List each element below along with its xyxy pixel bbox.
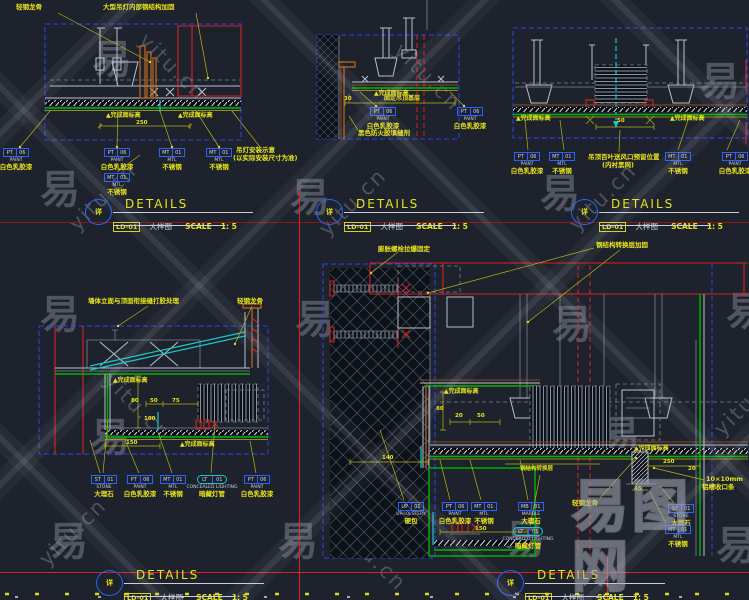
code: 01 [531,503,544,510]
note-label: 固定吊顶基层 [384,95,420,103]
finish-level-label: ▲完成面标高 [670,115,705,123]
divider [113,225,225,226]
dimension: 100 [144,416,155,422]
dimension-note: 钢结构转换层 [520,466,553,472]
title-block-title: DETAILS [356,197,419,211]
code: 01 [562,153,575,160]
scale-value: 1: 5 [221,222,237,231]
title-block: 详 DETAILS LD-01 大样图 SCALE 1: 5 [316,197,488,229]
divider [344,225,456,226]
code: PT [105,149,117,156]
detail-bubble: 详 [316,199,343,225]
material-callout: MT01 MTL 不锈钢 [532,152,592,175]
code: 01 [411,503,424,510]
code: MT [472,503,484,510]
note-label: (内衬黑网) [602,161,634,169]
code: PT [458,108,470,115]
divider [113,212,253,213]
leader-label: 大型吊灯内部钢结构加固 [103,3,175,11]
code: 06 [735,153,748,160]
material-callout: PT06 PAINT 白色乳胶漆 [0,148,46,171]
dimension: 250 [136,120,147,126]
callout-code-box: MB01 [518,502,544,511]
material-cn: 暗藏灯管 [498,542,558,550]
watermark-logo: 易图网 [572,478,749,598]
detail-3-linework [513,28,747,152]
code: LT [514,528,528,535]
code: 06 [470,108,483,115]
code: 06 [383,108,396,115]
code: UP [399,503,411,510]
callout-code-box: UP01 [398,502,424,511]
material-cn: 白色乳胶漆 [705,167,749,175]
code: 01 [212,476,227,483]
finish-level-label: ▲完成面标高 [178,112,213,120]
code: PT [443,503,455,510]
detail-bubble: 详 [497,570,524,596]
divider [344,212,484,213]
dimension: 30 [344,96,352,102]
code: PT [723,153,735,160]
material-cn: 不锈钢 [648,167,708,175]
dimension: 150 [475,526,486,532]
leader-label: 钢结构转换层加固 [596,241,648,249]
code: MT [207,149,219,156]
divider [599,212,739,213]
material-cn: 白色乳胶漆 [227,490,287,498]
callout-code-box: PT06 [244,475,270,484]
code: PT [245,476,257,483]
material-cn: 白色乳胶漆 [353,122,413,130]
title-block: 详 DETAILS LD-01 大样图 SCALE 1: 5 [571,197,743,229]
material-callout: PT06 PAINT 白色乳胶漆 [705,152,749,175]
material-callout: PT06 PAINT 白色乳胶漆 [353,107,413,130]
material-cn: 不锈钢 [189,163,249,171]
dimension: 80 [436,406,444,412]
callout-code-box: MT01 [471,502,497,511]
detail-bubble: 详 [96,570,123,596]
finish-level-label: ▲完成面标高 [634,445,669,453]
code: MT [161,476,173,483]
leader-label: 轻钢龙骨 [237,297,263,305]
detail-bubble: 详 [571,199,598,225]
drawing-subtitle: 大样图 [381,222,404,231]
callout-code-box: MT01 [665,152,691,161]
bubble-glyph: 详 [106,578,113,588]
code: MT [666,153,678,160]
code: 01 [172,149,185,156]
dimension: 50 [477,413,485,419]
dimension: 20 [688,466,696,472]
scale-value: 1: 5 [452,222,468,231]
title-block-title: DETAILS [136,568,199,582]
code: 01 [219,149,232,156]
code: ST [92,476,104,483]
material-callout: LT01 CONCEALED LIGHTING 暗藏灯管 [498,527,558,550]
title-block: 详 DETAILS LD-01 大样图 SCALE 1: 5 [85,197,257,229]
code: PT [515,153,527,160]
drawing-code: LD-01 [344,222,371,232]
material-callout: MT01 MTL 不锈钢 [648,152,708,175]
code: PT [4,149,16,156]
finish-level-label: ▲完成面标高 [180,441,215,449]
drawing-code: LD-01 [599,222,626,232]
dimension: 50 [617,118,625,124]
callout-code-box: MT01 [159,148,185,157]
scale-label: SCALE [185,222,212,231]
material-callout: PT06 PAINT 白色乳胶漆 [227,475,287,498]
material-cn: 白色乳胶漆 [440,122,500,130]
scale-label: SCALE [671,222,698,231]
callout-code-box: MT01 [206,148,232,157]
note-label: 黑色防火胶填缝剂 [358,129,410,137]
callout-code-box: PT06 [457,107,483,116]
callout-code-box: MT01 [549,152,575,161]
material-cn: 大理石 [501,517,561,525]
dimension: 75 [172,398,180,404]
code: PT [128,476,140,483]
scale-label: SCALE [416,222,443,231]
code: 01 [484,503,497,510]
drawing-subtitle: 大样图 [636,222,659,231]
cad-sheet[interactable]: 易 易 易 易 易 易 易 易 易 易 易 易 易 易 易 易 yitu.cn … [0,0,749,600]
code: MT [160,149,172,156]
material-callout: MT01 MTL 不锈钢 [189,148,249,171]
drawing-code: LD-01 [113,222,140,232]
divider [599,225,711,226]
bubble-glyph: 详 [95,207,102,217]
dimension: 50 [150,398,158,404]
bubble-glyph: 详 [326,207,333,217]
material-cn: 白色乳胶漆 [87,163,147,171]
code: 01 [678,153,691,160]
code: MB [519,503,531,510]
divider [124,596,236,597]
callout-code-box: LT01 [513,527,543,536]
dimension: 20 [455,413,463,419]
detail-bubble: 详 [85,199,112,225]
leader-label: 轻钢龙骨 [16,3,42,11]
material-callout: MT01 MTL 不锈钢 [87,173,147,196]
title-block: 详 DETAILS LD-01 大样图 SCALE 1: 5 [96,568,268,600]
callout-code-box: PT06 [722,152,748,161]
code: 06 [117,149,130,156]
bubble-glyph: 详 [581,207,588,217]
bubble-glyph: 详 [507,578,514,588]
finish-level-label: ▲完成面标高 [113,377,148,385]
divider [124,583,264,584]
code: 01 [117,174,130,181]
callout-code-box: LT01 [197,475,227,484]
code: MT [550,153,562,160]
material-callout: PT06 PAINT 白色乳胶漆 [440,107,500,130]
title-block-title: DETAILS [611,197,674,211]
leader-label: 膨胀螺栓拉爆固定 [378,245,430,253]
dimension: 140 [382,455,393,461]
material-callout: MB01 MARBLE 大理石 [501,502,561,525]
code: MT [105,174,117,181]
code: 06 [16,149,29,156]
finish-level-label: ▲完成面标高 [444,388,479,396]
leader-label: 墙体立面与顶面衔接缝打胶处理 [88,297,179,305]
code: 06 [257,476,270,483]
code: LT [198,476,212,483]
drawing-subtitle: 大样图 [150,222,173,231]
title-block-title: DETAILS [125,197,188,211]
detail-4-linework [39,304,268,473]
dimension: 80 [131,398,139,404]
material-cn: 不锈钢 [87,188,147,196]
material-cn: 不锈钢 [532,167,592,175]
code: 01 [528,528,543,535]
dimension: 250 [663,459,674,465]
finish-level-label: ▲完成面标高 [106,112,141,120]
finish-level-label: ▲完成面标高 [516,115,551,123]
scale-value: 1: 5 [707,222,723,231]
code: PT [371,108,383,115]
material-callout: PT06 PAINT 白色乳胶漆 [87,148,147,171]
dimension: 150 [126,440,137,446]
material-cn: 白色乳胶漆 [0,163,46,171]
callout-code-box: PT06 [104,148,130,157]
callout-code-box: PT06 [3,148,29,157]
callout-code-box: MT01 [104,173,130,182]
callout-code-box: PT06 [370,107,396,116]
